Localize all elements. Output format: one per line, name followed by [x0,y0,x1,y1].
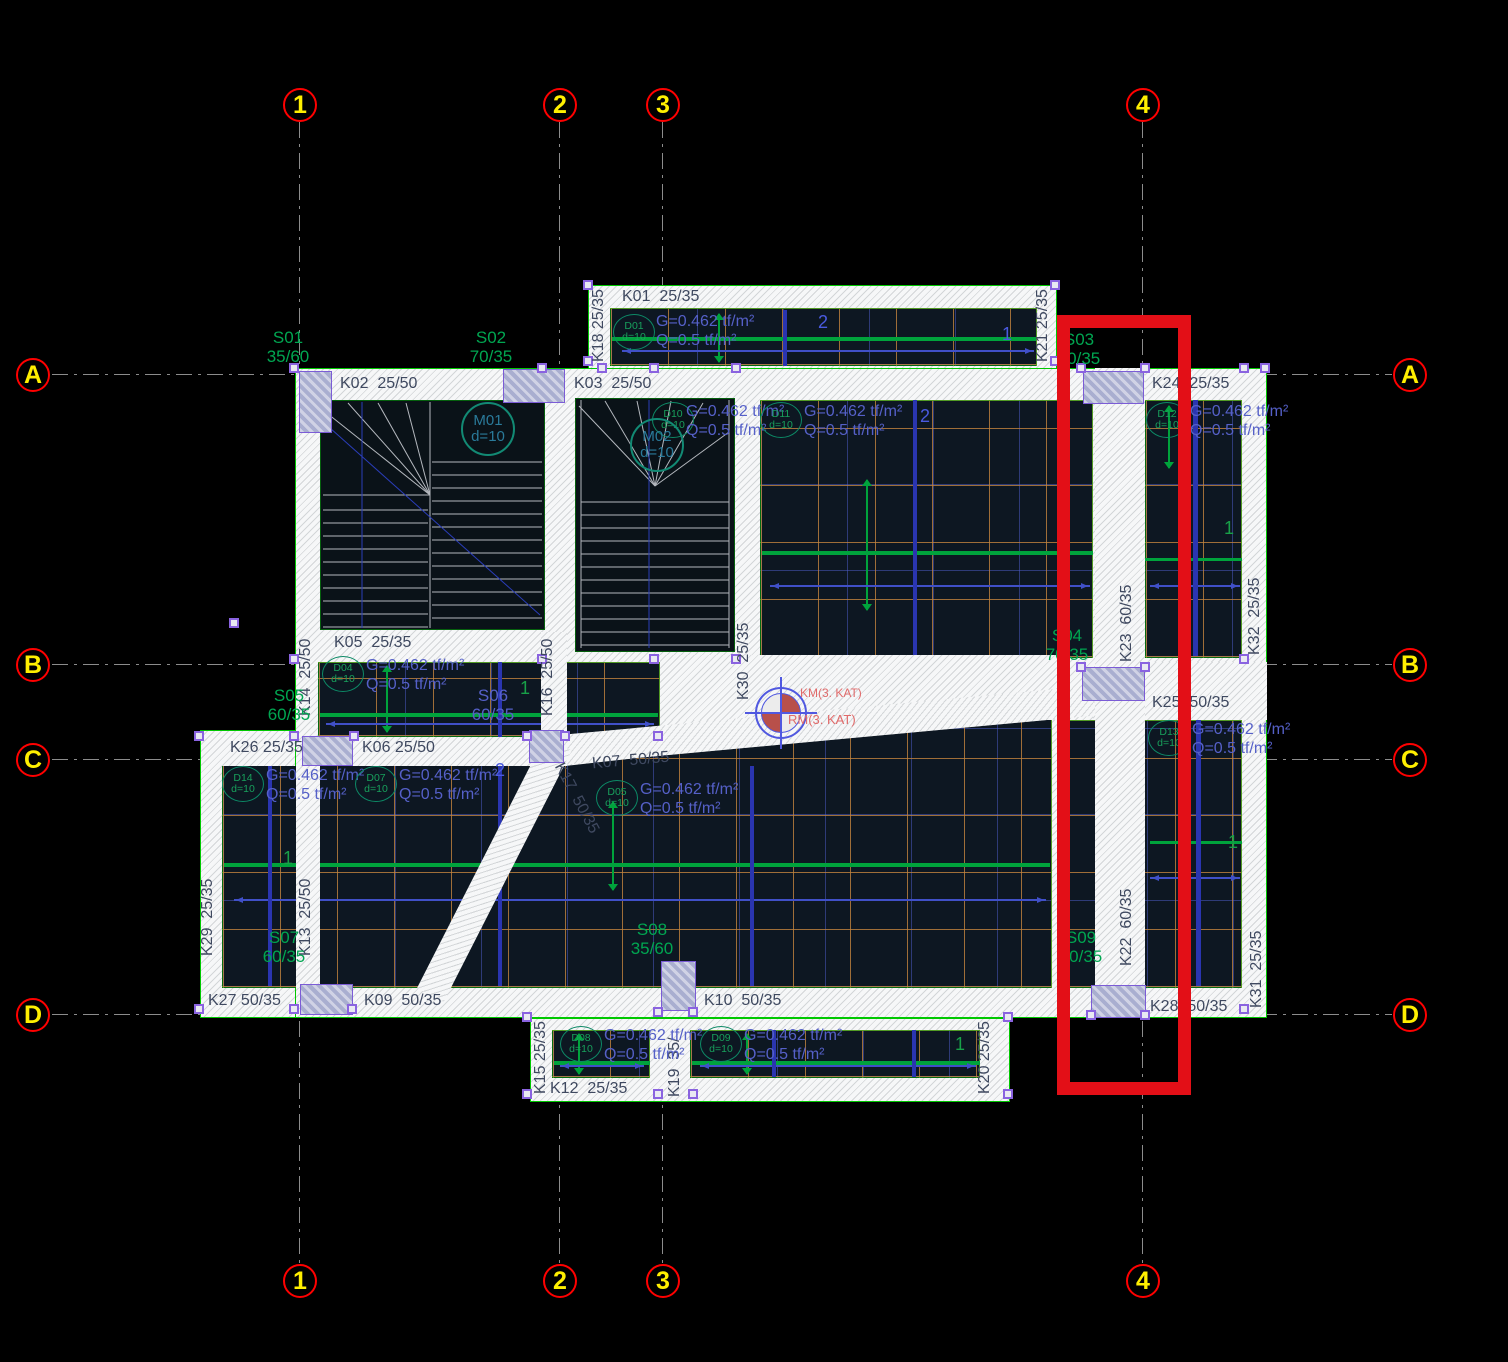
load-text-d13: G=0.462 tf/m²Q=0.5 tf/m² [1192,720,1290,758]
node-marker [537,363,547,373]
load-g: G=0.462 tf/m² [656,312,754,331]
slab-grid-line [913,400,917,656]
dimension-line [700,1065,976,1067]
slab-label-s02: S0270/35 [445,328,537,366]
highlight-rectangle [1057,315,1191,1095]
axis-bubble-3-bottom: 3 [646,1264,680,1298]
node-marker [194,731,204,741]
load-q: Q=0.5 tf/m² [640,799,738,818]
node-marker [688,1089,698,1099]
load-g: G=0.462 tf/m² [266,766,364,785]
node-marker [347,1004,357,1014]
slab-dim: 35/60 [242,347,334,366]
axis-bubble-C-right: C [1393,743,1427,777]
slab-grid-line [1196,720,1201,986]
node-marker [731,363,741,373]
beam-label-k16: K16 25/50 [539,639,557,716]
axis-bubble-A-left: A [16,358,50,392]
node-marker [289,1004,299,1014]
node-marker [560,731,570,741]
span-number: 1 [1228,832,1238,853]
drop-d09: D09d=10 [700,1026,742,1062]
beam-label-k12: K12 25/35 [550,1080,627,1098]
node-marker [194,1004,204,1014]
slab-dim: 70/35 [445,347,537,366]
load-text-d07: G=0.462 tf/m²Q=0.5 tf/m² [399,766,497,804]
mass-center-label: KM(3. KAT) [800,686,862,700]
beam-label-k18: K18 25/35 [590,289,608,362]
load-text-d12: G=0.462 tf/m²Q=0.5 tf/m² [1190,402,1288,440]
axis-bubble-2-top: 2 [543,88,577,122]
load-g: G=0.462 tf/m² [399,766,497,785]
axis-bubble-D-left: D [16,998,50,1032]
load-g: G=0.462 tf/m² [604,1026,702,1045]
drop-d14: D14d=10 [222,766,264,802]
span-number: 1 [1224,518,1234,539]
load-q: Q=0.5 tf/m² [399,785,497,804]
beam-label-k02: K02 25/50 [340,375,417,393]
column-a1 [299,371,332,433]
node-marker [522,1012,532,1022]
slab-grid-line [783,310,787,366]
floor-plan: K01 25/35 K02 25/50 K03 25/50 K24 25/35 … [0,0,1508,1362]
marker-thickness: d=10 [471,429,505,445]
axis-bubble-B-left: B [16,648,50,682]
marker-thickness: d=10 [640,445,674,461]
load-g: G=0.462 tf/m² [1190,402,1288,421]
load-text-d09: G=0.462 tf/m²Q=0.5 tf/m² [744,1026,842,1064]
drop-d05: D05d=10 [596,780,638,816]
drop-thickness: d=10 [569,1044,593,1055]
slab-name: S08 [606,920,698,939]
drop-thickness: d=10 [331,674,355,685]
slab-label-s01: S0135/60 [242,328,334,366]
axis-bubble-4-top: 4 [1126,88,1160,122]
slab-label-s08: S0835/60 [606,920,698,958]
axis-bubble-B-right: B [1393,648,1427,682]
center-cross-v [780,677,782,749]
drop-d07: D07d=10 [355,766,397,802]
drop-d11: D11d=10 [760,402,802,438]
drop-thickness: d=10 [622,332,646,343]
node-marker [349,731,359,741]
span-number: 2 [818,312,828,333]
slab-grid-line [750,766,754,986]
load-text-d14: G=0.462 tf/m²Q=0.5 tf/m² [266,766,364,804]
drop-d08: D08d=10 [560,1026,602,1062]
node-marker [1239,363,1249,373]
node-marker [649,363,659,373]
slab-name: S01 [242,328,334,347]
load-q: Q=0.5 tf/m² [744,1045,842,1064]
load-text-d04: G=0.462 tf/m²Q=0.5 tf/m² [366,656,464,694]
beam-label-k09: K09 50/35 [364,992,441,1010]
node-marker [522,1089,532,1099]
marker-m02: M02d=10 [630,418,684,472]
axis-bubble-2-bottom: 2 [543,1264,577,1298]
dimension-line [234,899,1046,901]
load-q: Q=0.5 tf/m² [656,331,754,350]
axis-bubble-A-right: A [1393,358,1427,392]
marker-id: M01 [473,413,502,429]
drop-d04: D04d=10 [322,656,364,692]
drop-thickness: d=10 [769,420,793,431]
column-d2 [300,984,353,1015]
load-text-d01: G=0.462 tf/m²Q=0.5 tf/m² [656,312,754,350]
rigidity-center-label: RM(3. KAT) [788,712,856,727]
beam-label-k01: K01 25/35 [622,288,699,306]
load-g: G=0.462 tf/m² [640,780,738,799]
node-marker [688,1007,698,1017]
beam-label-k27: K27 50/35 [208,992,281,1010]
load-q: Q=0.5 tf/m² [1192,739,1290,758]
rib-line [224,863,1050,867]
dimension-line [770,585,1090,587]
node-marker [653,1089,663,1099]
column-d3 [661,961,696,1011]
dimension-line [560,1065,644,1067]
slab-dim: 60/35 [238,947,330,966]
drop-thickness: d=10 [709,1044,733,1055]
rib-line [762,551,1093,555]
axis-bubble-1-bottom: 1 [283,1264,317,1298]
column-c2 [302,736,353,766]
slab-name: S02 [445,328,537,347]
node-marker [1239,654,1249,664]
load-g: G=0.462 tf/m² [1192,720,1290,739]
load-q: Q=0.5 tf/m² [804,421,902,440]
node-marker [597,363,607,373]
beam-label-k15: K15 25/35 [532,1021,550,1094]
span-number: 1 [1002,324,1012,345]
span-arrow [866,480,868,610]
beam-label-k29: K29 25/35 [199,879,217,956]
load-q: Q=0.5 tf/m² [1190,421,1288,440]
node-marker [1003,1089,1013,1099]
span-number: 1 [283,848,293,869]
beam-label-k26: K26 25/35 [230,739,303,757]
slab-dim: 35/60 [606,939,698,958]
column-c3 [529,730,564,763]
drop-thickness: d=10 [605,798,629,809]
slab-grid-line [912,1030,916,1077]
node-marker [653,731,663,741]
node-marker [229,618,239,628]
load-q: Q=0.5 tf/m² [604,1045,702,1064]
node-marker [649,654,659,664]
load-text-d05: G=0.462 tf/m²Q=0.5 tf/m² [640,780,738,818]
beam-label-k05: K05 25/35 [334,634,411,652]
axis-bubble-4-bottom: 4 [1126,1264,1160,1298]
column-a2 [503,369,565,403]
load-text-d11: G=0.462 tf/m²Q=0.5 tf/m² [804,402,902,440]
slab-dim: 60/35 [447,705,539,724]
drop-d01: D01d=10 [613,314,655,350]
beam-label-k10: K10 50/35 [704,992,781,1010]
slab-dim: 60/35 [243,705,335,724]
load-g: G=0.462 tf/m² [804,402,902,421]
dimension-line [622,350,1034,352]
slab-label-s07: S0760/35 [238,928,330,966]
beam-label-k31: K31 25/35 [1248,931,1266,1008]
beam-label-k30: K30 25/35 [735,623,753,700]
load-q: Q=0.5 tf/m² [266,785,364,804]
beam-label-k06: K06 25/50 [362,739,435,757]
node-marker [1003,1012,1013,1022]
drop-thickness: d=10 [231,784,255,795]
beam-label-k20: K20 25/35 [976,1021,994,1094]
node-marker [1260,363,1270,373]
node-marker [653,1007,663,1017]
drop-thickness: d=10 [364,784,388,795]
slab-label-s05: S0560/35 [243,686,335,724]
span-number: 1 [955,1034,965,1055]
axis-bubble-1-top: 1 [283,88,317,122]
beam-label-k03: K03 25/50 [574,375,651,393]
load-q: Q=0.5 tf/m² [366,675,464,694]
axis-bubble-D-right: D [1393,998,1427,1032]
axis-bubble-C-left: C [16,743,50,777]
marker-m01: M01d=10 [461,402,515,456]
marker-id: M02 [642,429,671,445]
node-marker [522,731,532,741]
beam-label-k32: K32 25/35 [1246,578,1264,655]
axis-bubble-3-top: 3 [646,88,680,122]
load-g: G=0.462 tf/m² [744,1026,842,1045]
slab-name: S05 [243,686,335,705]
load-g: G=0.462 tf/m² [366,656,464,675]
load-text-d08: G=0.462 tf/m²Q=0.5 tf/m² [604,1026,702,1064]
slab-name: S07 [238,928,330,947]
span-number: 2 [920,406,930,427]
